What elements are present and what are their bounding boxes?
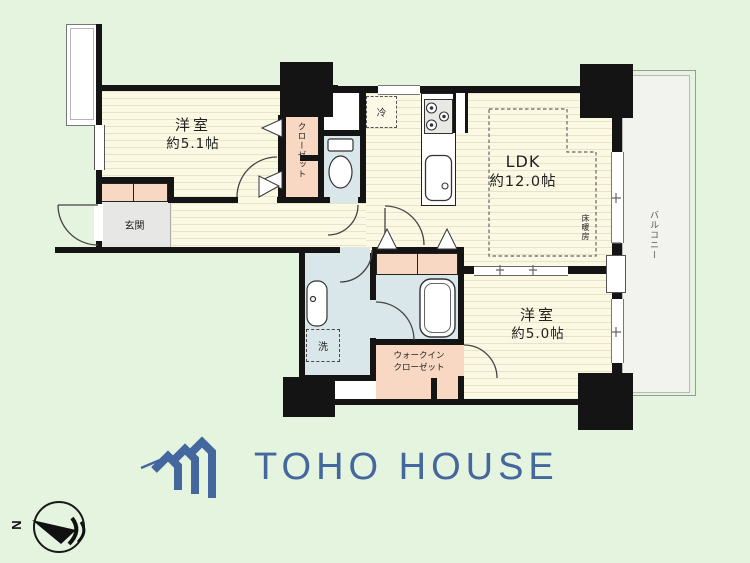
genkan-threshold: [170, 203, 171, 247]
duct-slot: [453, 93, 468, 133]
bathroom-floor: [370, 275, 458, 339]
walk-in-closet-label: ウォークイン クローゼット: [376, 351, 462, 374]
wall-segment: [431, 378, 437, 399]
kitchen-stove: [424, 99, 453, 134]
entry-alcove: [66, 24, 98, 126]
pillar: [280, 62, 333, 117]
wall-segment: [55, 247, 305, 253]
genkan-label: 玄関: [99, 217, 170, 232]
wall-segment: [370, 253, 376, 300]
bath-side-storage-divider: [417, 253, 418, 275]
room-5-1-label: 洋室 約5.1帖: [133, 116, 253, 153]
room-name: LDK: [463, 152, 583, 173]
toilet-room-floor: [324, 136, 360, 203]
wall-segment: [96, 24, 102, 132]
wall-segment: [97, 177, 174, 183]
room-name: 洋室: [478, 306, 598, 326]
wall-segment: [305, 247, 340, 253]
wall-segment: [420, 86, 583, 93]
wall-segment: [278, 115, 286, 200]
floor-heating-label: 床暖房: [580, 214, 591, 258]
wall-segment: [299, 247, 305, 381]
compass-north-label: N: [9, 520, 24, 529]
fridge-label: 冷: [377, 105, 387, 119]
window-bedroom-corner: [606, 255, 626, 293]
ldk-label: LDK 約12.0帖: [463, 152, 583, 192]
sliding-door-ldk-bedroom: [474, 266, 568, 276]
room-size: 約12.0帖: [463, 173, 583, 192]
floor-plan-image: 冷 洗: [0, 0, 750, 563]
pillar: [283, 377, 335, 417]
toho-house-logo-text: TOHO HOUSE: [254, 446, 559, 489]
room-size: 約5.0帖: [478, 326, 598, 344]
wall-segment: [335, 399, 582, 405]
room-name: 洋室: [133, 116, 253, 136]
hallway-floor: [172, 203, 368, 247]
entry-door-arc: [58, 205, 98, 245]
wall-segment: [318, 107, 324, 200]
toho-house-logo-mark: [138, 430, 238, 505]
window-room51-left: [94, 125, 105, 170]
room-size: 約5.1帖: [133, 136, 253, 154]
room-5-0-label: 洋室 約5.0帖: [478, 306, 598, 343]
utility-space: [335, 381, 376, 399]
wall-segment: [96, 168, 102, 204]
pillar: [578, 373, 633, 430]
window-ldk-balcony: [611, 152, 624, 243]
pillar: [580, 64, 633, 118]
wall-segment: [333, 86, 378, 93]
window-bedroom-balcony: [611, 299, 624, 363]
toho-house-logo: TOHO HOUSE: [138, 430, 559, 505]
window-kitchen-top: [378, 85, 420, 95]
washer-space: 洗: [306, 329, 340, 362]
wall-segment: [372, 247, 464, 253]
balcony-label: バルコニー: [647, 210, 660, 280]
shoe-cabinet-divider: [133, 183, 134, 202]
compass-north-indicator: N: [8, 494, 103, 560]
entry-alcove-inner-line: [70, 28, 94, 120]
fridge-space: 冷: [366, 96, 397, 128]
wall-segment: [174, 197, 238, 203]
closet-label: クローゼット: [295, 122, 307, 196]
wall-segment: [464, 266, 474, 274]
wall-segment: [376, 339, 458, 345]
washer-label: 洗: [318, 338, 328, 353]
wall-segment: [320, 130, 362, 136]
wall-segment: [360, 88, 366, 203]
